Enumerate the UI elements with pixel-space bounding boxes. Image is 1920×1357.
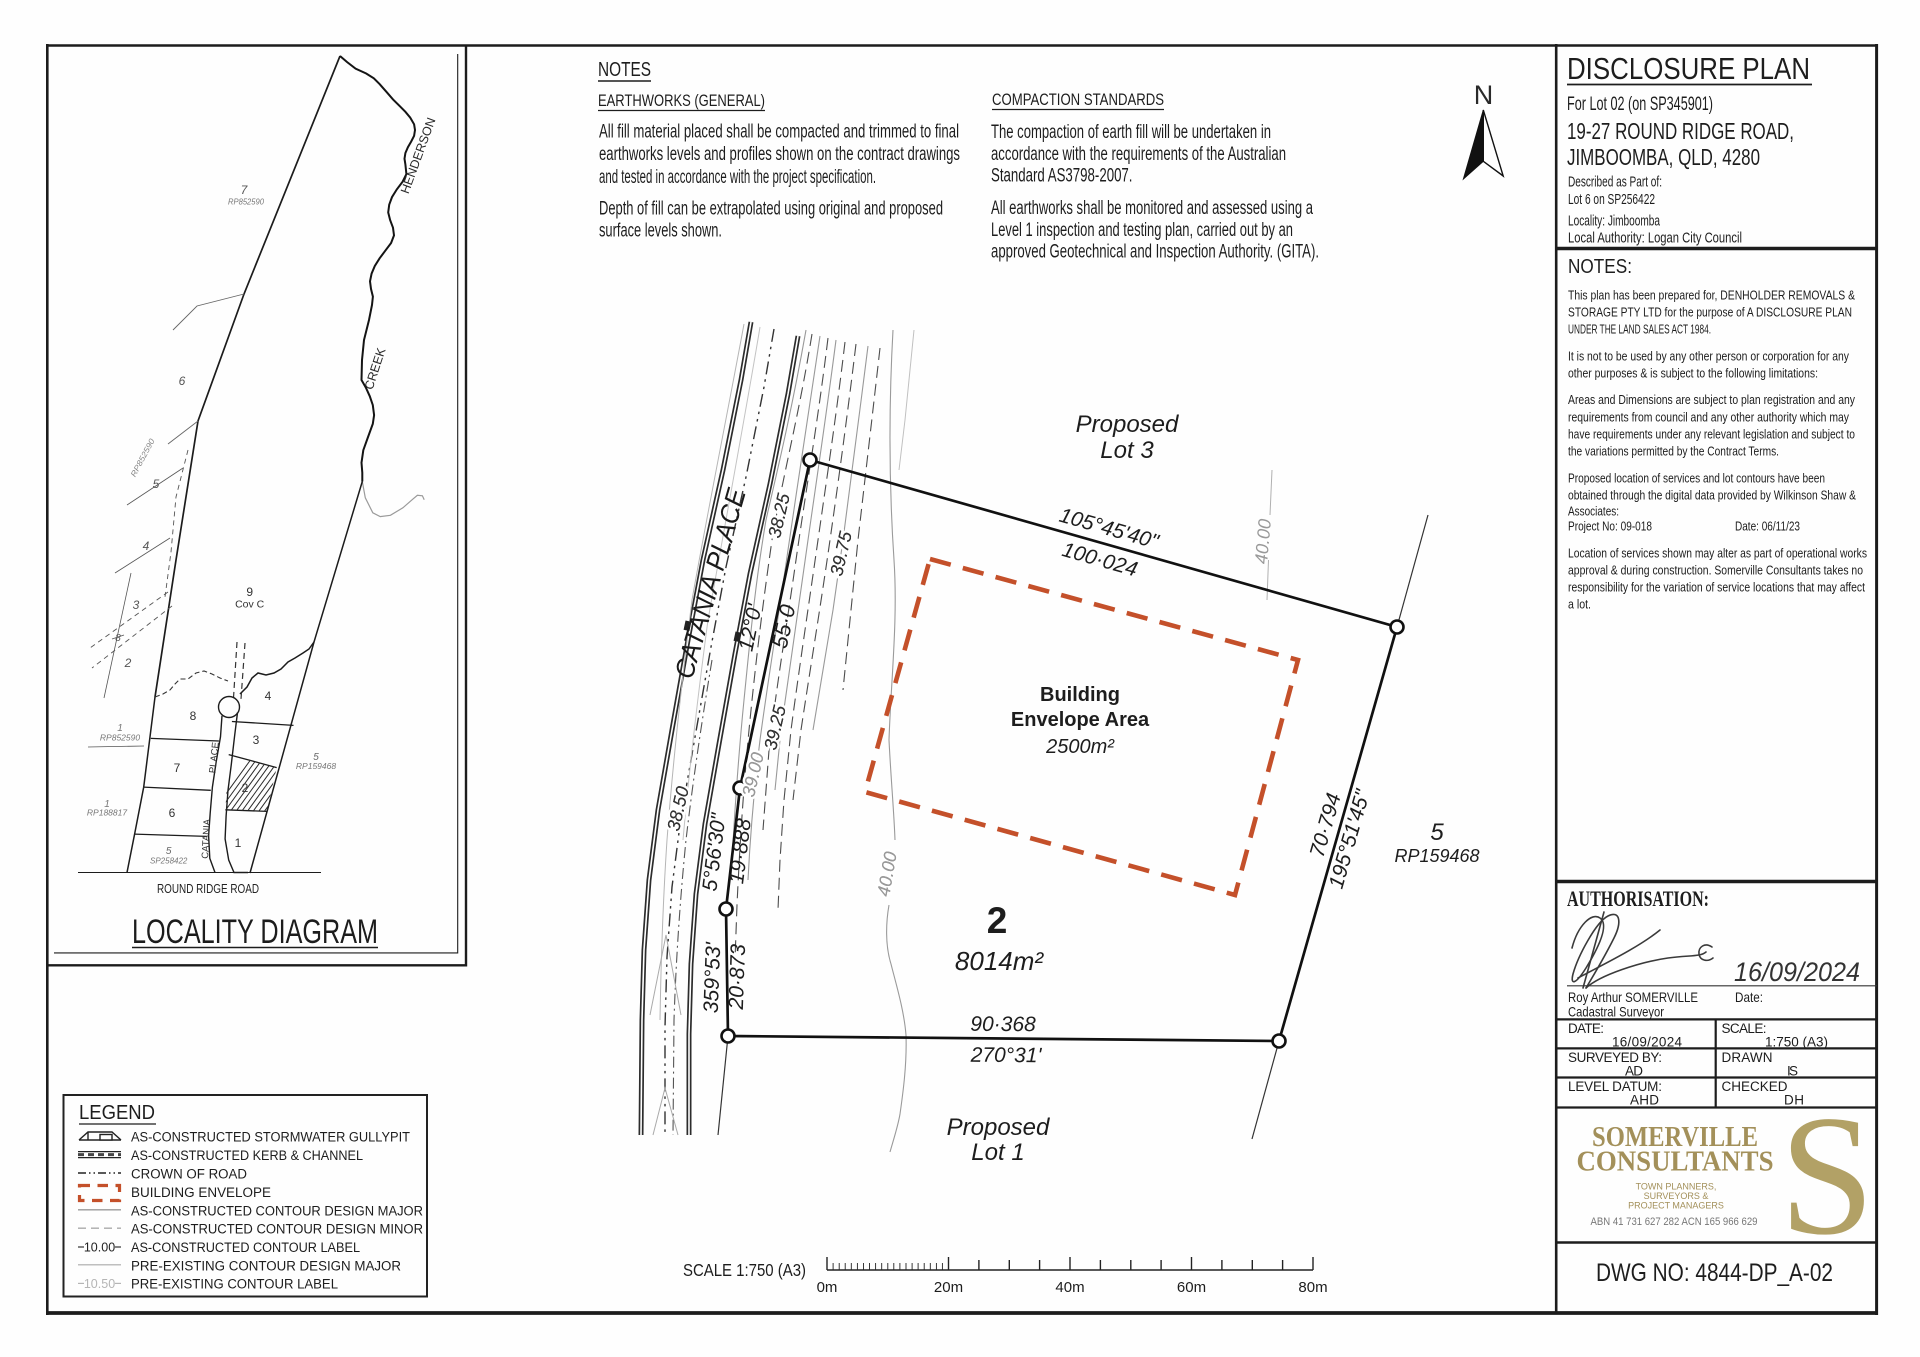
- svg-text:9: 9: [246, 585, 253, 599]
- svg-text:CROWN OF ROAD: CROWN OF ROAD: [131, 1166, 247, 1182]
- svg-text:accordance with the requiremen: accordance with the requirements of the …: [991, 144, 1286, 165]
- svg-text:8014m²: 8014m²: [955, 946, 1044, 976]
- svg-text:40m: 40m: [1055, 1279, 1084, 1296]
- svg-text:Proposed location of services: Proposed location of services and lot co…: [1568, 470, 1825, 485]
- svg-text:Location of services shown may: Location of services shown may alter as …: [1568, 545, 1867, 560]
- svg-text:COMPACTION STANDARDS: COMPACTION STANDARDS: [992, 90, 1164, 109]
- svg-text:Locality: Jimboomba: Locality: Jimboomba: [1568, 214, 1661, 230]
- svg-text:JIMBOOMBA, QLD, 4280: JIMBOOMBA, QLD, 4280: [1567, 144, 1760, 170]
- svg-text:UNDER THE LAND SALES ACT 1984.: UNDER THE LAND SALES ACT 1984.: [1568, 322, 1711, 337]
- svg-text:For Lot 02 (on SP345901): For Lot 02 (on SP345901): [1567, 94, 1713, 115]
- svg-text:7: 7: [174, 761, 181, 775]
- svg-text:2: 2: [124, 656, 132, 670]
- svg-text:1:750 (A3): 1:750 (A3): [1765, 1035, 1828, 1050]
- svg-text:RP852590: RP852590: [228, 197, 264, 207]
- svg-text:requirements from council and: requirements from council and any other …: [1568, 410, 1849, 425]
- svg-text:Level 1 inspection and testing: Level 1 inspection and testing plan, car…: [991, 220, 1293, 241]
- svg-text:SCALE:: SCALE:: [1722, 1021, 1767, 1036]
- svg-text:80m: 80m: [1298, 1279, 1327, 1296]
- svg-text:3: 3: [253, 733, 260, 747]
- svg-text:PROJECT MANAGERS: PROJECT MANAGERS: [1628, 1201, 1724, 1211]
- svg-text:Lot 1: Lot 1: [971, 1139, 1024, 1166]
- svg-text:RP159468: RP159468: [296, 761, 336, 771]
- svg-text:Project No: 09-018: Project No: 09-018: [1568, 519, 1652, 534]
- svg-text:10.50: 10.50: [84, 1277, 115, 1291]
- svg-text:6: 6: [169, 806, 176, 820]
- svg-text:CHECKED: CHECKED: [1722, 1079, 1788, 1094]
- svg-text:Date: 06/11/23: Date: 06/11/23: [1735, 519, 1800, 534]
- svg-text:PRE-EXISTING CONTOUR DESIGN MA: PRE-EXISTING CONTOUR DESIGN MAJOR: [131, 1258, 401, 1274]
- svg-text:ABN 41 731 627 282 ACN 16: ABN 41 731 627 282 ACN 165 966 629: [1591, 1216, 1758, 1228]
- svg-text:10.00: 10.00: [84, 1241, 115, 1255]
- svg-text:It is not to be used by any ot: It is not to be used by any other person…: [1568, 348, 1849, 363]
- svg-text:NOTES:: NOTES:: [1568, 255, 1632, 278]
- svg-text:359°53': 359°53': [700, 941, 725, 1014]
- svg-text:Standard AS3798-2007.: Standard AS3798-2007.: [991, 166, 1133, 187]
- svg-text:0m: 0m: [817, 1279, 838, 1296]
- svg-text:8: 8: [190, 709, 197, 723]
- svg-text:SCALE 1:750 (A3): SCALE 1:750 (A3): [683, 1260, 806, 1280]
- svg-text:The compaction of earth fill w: The compaction of earth fill will be und…: [991, 122, 1271, 143]
- svg-text:4: 4: [265, 689, 272, 703]
- svg-text:DATE:: DATE:: [1568, 1021, 1604, 1036]
- svg-text:2500m²: 2500m²: [1045, 736, 1115, 758]
- svg-text:RP852590: RP852590: [100, 733, 140, 743]
- svg-text:earthworks levels and profiles: earthworks levels and profiles shown on …: [599, 144, 960, 165]
- svg-text:and tested in accordance with: and tested in accordance with the projec…: [599, 167, 876, 188]
- svg-text:DISCLOSURE PLAN: DISCLOSURE PLAN: [1567, 51, 1810, 86]
- svg-text:All fill material placed shall: All fill material placed shall be compac…: [599, 121, 959, 142]
- svg-text:other purposes & is subject to: other purposes & is subject to the follo…: [1568, 365, 1818, 380]
- svg-text:All earthworks shall be monito: All earthworks shall be monitored and as…: [991, 198, 1313, 219]
- svg-text:5: 5: [166, 846, 172, 857]
- svg-text:Areas and Dimensions are subje: Areas and Dimensions are subject to plan…: [1568, 392, 1855, 407]
- svg-text:8: 8: [115, 633, 121, 644]
- svg-text:Associates:: Associates:: [1568, 503, 1619, 518]
- svg-text:3: 3: [133, 598, 140, 612]
- svg-text:Lot 6 on SP256422: Lot 6 on SP256422: [1568, 192, 1655, 208]
- svg-text:SP258422: SP258422: [150, 857, 188, 866]
- svg-text:2: 2: [242, 781, 249, 795]
- svg-text:NOTES: NOTES: [598, 59, 651, 81]
- svg-text:16/09/2024: 16/09/2024: [1734, 957, 1860, 987]
- svg-text:approved Geotechnical and Insp: approved Geotechnical and Inspection Aut…: [991, 242, 1319, 263]
- svg-text:BUILDING ENVELOPE: BUILDING ENVELOPE: [131, 1185, 271, 1201]
- svg-text:STORAGE PTY LTD for the purpos: STORAGE PTY LTD for the purpose of A DIS…: [1568, 305, 1852, 320]
- svg-text:N: N: [1474, 80, 1494, 110]
- svg-text:1: 1: [235, 836, 242, 850]
- svg-text:19-27 ROUND RIDGE ROAD,: 19-27 ROUND RIDGE ROAD,: [1567, 118, 1794, 144]
- svg-text:PRE-EXISTING CONTOUR LABEL: PRE-EXISTING CONTOUR LABEL: [131, 1277, 338, 1293]
- svg-text:5: 5: [153, 477, 160, 491]
- svg-text:have requirements under any re: have requirements under any relevant leg…: [1568, 427, 1855, 442]
- svg-text:LEGEND: LEGEND: [79, 1102, 155, 1124]
- svg-text:4: 4: [143, 539, 150, 553]
- svg-text:Cadastral Surveyor: Cadastral Surveyor: [1568, 1004, 1664, 1020]
- svg-text:AS-CONSTRUCTED KERB & CHANNEL: AS-CONSTRUCTED KERB & CHANNEL: [131, 1148, 363, 1164]
- svg-text:Building: Building: [1040, 684, 1120, 706]
- svg-text:surface levels shown.: surface levels shown.: [599, 220, 722, 241]
- svg-text:responsibility for the variati: responsibility for the variation of serv…: [1568, 579, 1865, 594]
- svg-text:AS-CONSTRUCTED CONTOUR DESIGN: AS-CONSTRUCTED CONTOUR DESIGN MAJOR: [131, 1203, 423, 1219]
- svg-text:EARTHWORKS (GENERAL): EARTHWORKS (GENERAL): [598, 91, 765, 110]
- svg-text:16/09/2024: 16/09/2024: [1612, 1035, 1682, 1050]
- svg-text:RP159468: RP159468: [1394, 846, 1479, 866]
- svg-text:AHD: AHD: [1630, 1093, 1659, 1108]
- svg-text:LOCALITY DIAGRAM: LOCALITY DIAGRAM: [132, 913, 378, 951]
- svg-text:approval & during construction: approval & during construction. Somervil…: [1568, 562, 1863, 577]
- svg-text:40.00: 40.00: [1251, 518, 1275, 565]
- svg-text:Proposed: Proposed: [1076, 411, 1179, 438]
- svg-text:270°31': 270°31': [970, 1044, 1043, 1068]
- svg-text:90·368: 90·368: [970, 1013, 1036, 1037]
- svg-text:TOWN PLANNERS,: TOWN PLANNERS,: [1636, 1182, 1717, 1192]
- svg-text:20·873: 20·873: [725, 943, 750, 1010]
- svg-text:SURVEYED BY:: SURVEYED BY:: [1568, 1050, 1662, 1065]
- svg-text:6: 6: [179, 374, 186, 388]
- svg-text:5: 5: [1430, 819, 1444, 846]
- svg-text:20m: 20m: [934, 1279, 963, 1296]
- svg-text:Lot 3: Lot 3: [1100, 437, 1154, 464]
- svg-text:AD: AD: [1625, 1064, 1643, 1079]
- svg-text:Proposed: Proposed: [947, 1114, 1050, 1141]
- svg-text:ROUND RIDGE ROAD: ROUND RIDGE ROAD: [157, 882, 259, 896]
- svg-text:RP188817: RP188817: [87, 808, 127, 818]
- svg-text:60m: 60m: [1177, 1279, 1206, 1296]
- svg-text:SURVEYORS &: SURVEYORS &: [1644, 1191, 1709, 1201]
- svg-text:IS: IS: [1787, 1064, 1798, 1079]
- svg-text:AS-CONSTRUCTED STORMWATER GULL: AS-CONSTRUCTED STORMWATER GULLYPIT: [131, 1130, 410, 1146]
- svg-text:a lot.: a lot.: [1568, 596, 1591, 611]
- svg-text:Envelope Area: Envelope Area: [1011, 709, 1150, 731]
- svg-text:CATANIA: CATANIA: [200, 818, 213, 859]
- svg-text:obtained through the digital d: obtained through the digital data provid…: [1568, 487, 1856, 502]
- svg-text:DWG NO: 4844-DP_A-02: DWG NO: 4844-DP_A-02: [1596, 1259, 1833, 1287]
- svg-text:This plan has been prepared fo: This plan has been prepared for, DENHOLD…: [1568, 288, 1855, 303]
- svg-text:AUTHORISATION:: AUTHORISATION:: [1567, 886, 1709, 911]
- svg-text:Depth of fill can be extrapola: Depth of fill can be extrapolated using …: [599, 199, 943, 220]
- svg-text:Local Authority: Logan City Co: Local Authority: Logan City Council: [1568, 231, 1742, 247]
- svg-text:Cov C: Cov C: [235, 599, 265, 611]
- svg-text:AS-CONSTRUCTED CONTOUR LABEL: AS-CONSTRUCTED CONTOUR LABEL: [131, 1240, 360, 1256]
- svg-text:Date:: Date:: [1735, 989, 1763, 1005]
- svg-text:Described as Part of:: Described as Part of:: [1568, 175, 1662, 191]
- svg-text:DRAWN: DRAWN: [1722, 1050, 1773, 1065]
- svg-text:the variations permitted by th: the variations permitted by the Contract…: [1568, 444, 1779, 459]
- svg-text:2: 2: [987, 900, 1008, 941]
- svg-text:AS-CONSTRUCTED CONTOUR DESIGN: AS-CONSTRUCTED CONTOUR DESIGN MINOR: [131, 1222, 423, 1238]
- svg-text:CONSULTANTS: CONSULTANTS: [1577, 1147, 1774, 1178]
